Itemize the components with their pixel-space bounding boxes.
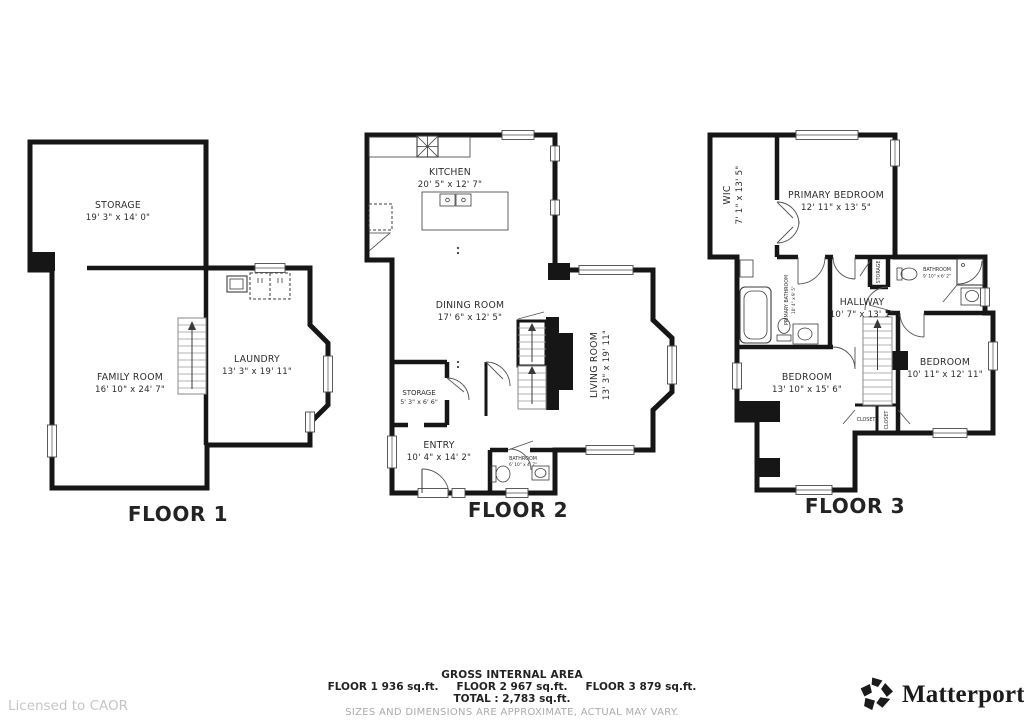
room-dims: 7' 1" x 13' 5" xyxy=(735,166,745,225)
floor3-label: FLOOR 3 xyxy=(805,494,905,518)
room-name: PRIMARY BEDROOM xyxy=(788,190,884,201)
room-name: HALLWAY xyxy=(840,297,885,308)
room-label-closet-right: CLOSET xyxy=(884,411,890,430)
floorplan-page: { "floors": [ { "label": "FLOOR 1", "roo… xyxy=(0,0,1024,723)
floor2-stair-wall-b xyxy=(559,333,573,390)
room-name: CLOSET xyxy=(857,417,876,423)
matterport-logo: Matterport™ xyxy=(860,676,1024,713)
room-name: BEDROOM xyxy=(782,372,832,383)
room-name: WIC xyxy=(722,185,733,204)
room-name: KITCHEN xyxy=(429,167,471,178)
floor2-area: FLOOR 2 967 sq.ft. xyxy=(457,681,568,693)
floor1-plan: STORAGE 19' 3" x 14' 0" FAMILY ROOM 16' … xyxy=(20,130,350,530)
floor2-wall-block-a xyxy=(548,263,570,280)
floor3-wall-block-b xyxy=(755,458,780,477)
matterport-icon xyxy=(860,676,894,713)
floor1-label: FLOOR 1 xyxy=(128,502,228,526)
room-name: PRIMARY BATHROOM xyxy=(784,275,790,325)
room-name: STORAGE xyxy=(402,389,435,397)
room-name: STORAGE xyxy=(876,261,882,284)
room-name: BATHROOM xyxy=(923,267,951,273)
room-name: LIVING ROOM xyxy=(589,332,600,398)
floor3-wall-block-a xyxy=(735,401,780,422)
room-dims: 17' 6" x 12' 5" xyxy=(438,313,502,323)
room-dims: 10' 11" x 12' 11" xyxy=(907,370,983,380)
room-name: ENTRY xyxy=(423,440,454,451)
floor2-plan: KITCHEN 20' 5" x 12' 7" DINING ROOM 17' … xyxy=(360,120,690,530)
room-dims: 6' 10" x 4' 7" xyxy=(509,462,537,468)
room-name: CLOSET xyxy=(884,411,890,430)
floor3-area: FLOOR 3 879 sq.ft. xyxy=(585,681,696,693)
floor2-stairs xyxy=(518,312,546,409)
room-dims: 12' 11" x 13' 5" xyxy=(801,203,871,213)
matterport-wordmark: Matterport™ xyxy=(902,680,1024,709)
room-dims: 10' 7" x 13' 1" xyxy=(830,310,894,320)
room-label-hall-storage: STORAGE xyxy=(876,261,882,284)
room-name: DINING ROOM xyxy=(436,300,505,311)
license-text: Licensed to CAOR xyxy=(8,698,128,714)
room-dims: 10' 4" x 9' 5" xyxy=(791,286,797,314)
room-dims: 13' 3" x 19' 11" xyxy=(602,330,612,400)
room-dims: 13' 3" x 19' 11" xyxy=(222,367,292,377)
floor2-outer-walls xyxy=(367,135,672,493)
room-label-storage-f2: STORAGE 5' 3" x 6' 6" xyxy=(400,389,438,406)
floor3-plan: WIC 7' 1" x 13' 5" PRIMARY BEDROOM 12' 1… xyxy=(700,120,1010,530)
room-dims: 19' 3" x 14' 0" xyxy=(86,213,150,223)
room-name: LAUNDRY xyxy=(234,354,280,365)
floor1-area: FLOOR 1 936 sq.ft. xyxy=(328,681,439,693)
room-dims: 10' 4" x 14' 2" xyxy=(407,453,471,463)
floor1-stairs xyxy=(178,318,206,394)
room-dims: 20' 5" x 12' 7" xyxy=(418,180,482,190)
room-name: BATHROOM xyxy=(509,456,537,462)
room-label-closet-left: CLOSET xyxy=(857,417,876,423)
floor3-stairs xyxy=(863,317,892,405)
room-dims: 9' 10" x 6' 2" xyxy=(923,274,951,280)
floor1-outer-walls xyxy=(30,142,328,488)
floor2-stair-wall-a xyxy=(546,317,559,410)
room-dims: 13' 10" x 15' 6" xyxy=(772,385,842,395)
floor1-wall-block xyxy=(28,252,55,271)
room-name: BEDROOM xyxy=(920,357,970,368)
room-name: FAMILY ROOM xyxy=(97,372,163,383)
floor2-label: FLOOR 2 xyxy=(468,498,568,522)
brand-name-text: Matterport xyxy=(902,681,1024,708)
room-name: STORAGE xyxy=(95,200,141,211)
room-dims: 16' 10" x 24' 7" xyxy=(95,385,165,395)
room-dims: 5' 3" x 6' 6" xyxy=(400,398,438,406)
